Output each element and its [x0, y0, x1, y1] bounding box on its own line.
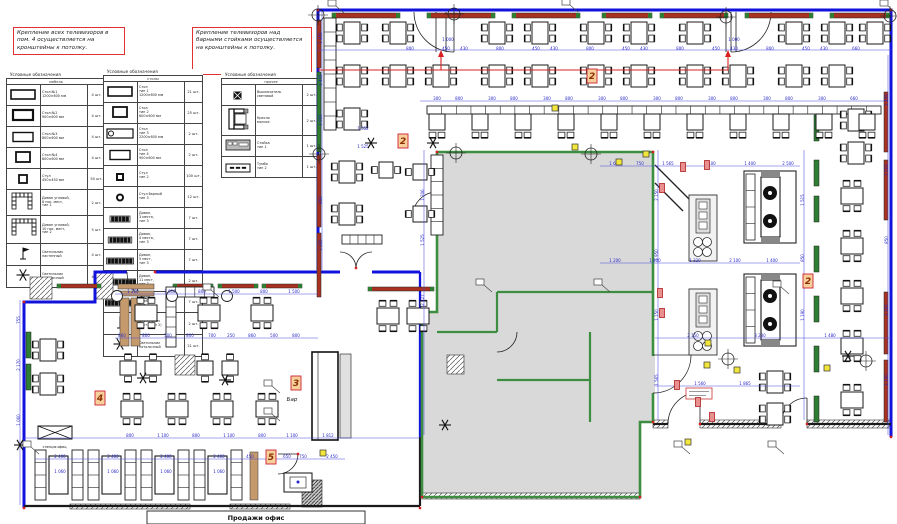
table-4seat — [841, 331, 863, 362]
waiter-station — [38, 426, 72, 439]
chair-icon — [610, 132, 617, 138]
chair-icon — [854, 181, 861, 187]
ceiling-light-icon — [427, 138, 439, 148]
chair-icon — [200, 323, 207, 329]
table-icon — [344, 22, 360, 44]
socket-icon — [734, 367, 740, 373]
svg-text:800: 800 — [192, 433, 200, 438]
chair-icon — [429, 169, 435, 176]
svg-text:300: 300 — [543, 96, 551, 101]
chair-icon — [550, 24, 556, 31]
table-4seat — [779, 22, 810, 44]
table-4seat — [166, 394, 188, 425]
table-4seat — [482, 65, 513, 87]
svg-text:4: 4 — [96, 394, 103, 404]
svg-text:450: 450 — [246, 454, 254, 459]
chair-icon — [782, 132, 789, 138]
svg-text:660: 660 — [850, 96, 858, 101]
svg-text:800: 800 — [292, 333, 300, 338]
svg-text:1 812: 1 812 — [322, 433, 334, 438]
chair-icon — [649, 35, 655, 42]
svg-text:1 206: 1 206 — [420, 189, 425, 201]
chair-icon — [213, 419, 220, 425]
table-4seat — [211, 394, 233, 425]
svg-text:800: 800 — [258, 433, 266, 438]
table-icon — [413, 206, 427, 222]
chair-icon — [825, 132, 832, 138]
chair-icon — [773, 132, 780, 138]
chair-icon — [372, 167, 378, 174]
chair-icon — [253, 323, 260, 329]
room-number-tag: 5 — [266, 450, 276, 464]
svg-text:450: 450 — [802, 46, 810, 51]
chair-icon — [854, 231, 861, 237]
svg-text:800: 800 — [785, 96, 793, 101]
chair-icon — [760, 373, 766, 380]
chair-icon — [148, 323, 155, 329]
chair-icon — [760, 384, 766, 391]
table-icon — [344, 65, 360, 87]
chair-icon — [123, 394, 130, 400]
chair-icon — [150, 354, 157, 360]
table-icon — [588, 22, 604, 44]
chair-icon — [804, 24, 810, 31]
svg-text:450: 450 — [622, 46, 630, 51]
chair-icon — [860, 35, 866, 42]
booth-table — [601, 114, 617, 138]
table-icon — [631, 22, 647, 44]
table-icon — [558, 114, 574, 130]
room-number-tag: 3 — [291, 376, 301, 390]
svg-text:800: 800 — [186, 333, 194, 338]
svg-text:1 525: 1 525 — [357, 144, 369, 149]
table-icon — [687, 65, 703, 87]
chair-icon — [843, 410, 850, 416]
chair-icon — [760, 416, 766, 423]
chair-icon — [148, 298, 155, 304]
svg-text:300: 300 — [488, 96, 496, 101]
table-icon — [841, 392, 863, 408]
table-4seat — [624, 65, 655, 87]
chair-icon — [507, 24, 513, 31]
table-4seat — [383, 65, 414, 87]
svg-text:850: 850 — [800, 254, 805, 262]
table-icon — [816, 114, 832, 130]
table-icon — [515, 114, 531, 130]
backbar-shelf — [340, 354, 351, 438]
chair-icon — [406, 169, 412, 176]
chair-icon — [383, 78, 389, 85]
chair-icon — [841, 111, 847, 118]
grid-marker-icon — [444, 4, 464, 24]
chair-icon — [134, 394, 141, 400]
svg-text:1 525: 1 525 — [420, 234, 425, 246]
chair-icon — [420, 326, 427, 332]
svg-text:500: 500 — [270, 333, 278, 338]
table-icon — [848, 142, 864, 164]
svg-text:430: 430 — [460, 46, 468, 51]
table-icon — [198, 305, 220, 321]
svg-text:800: 800 — [142, 333, 150, 338]
chair-icon — [567, 132, 574, 138]
svg-text:2 500: 2 500 — [782, 161, 794, 166]
callout-tag — [768, 441, 784, 454]
chair-icon — [854, 385, 861, 391]
chair-icon — [748, 67, 754, 74]
chair-icon — [779, 67, 785, 74]
table-4seat — [198, 298, 220, 329]
chair-icon — [779, 78, 785, 85]
chair-icon — [202, 354, 209, 360]
chair-icon — [847, 67, 853, 74]
chair-icon — [785, 384, 791, 391]
table-4seat — [624, 22, 655, 44]
chair-icon — [507, 78, 513, 85]
chair-icon — [525, 24, 531, 31]
table-4seat — [841, 142, 872, 164]
chair-icon — [779, 35, 785, 42]
table-4seat — [841, 385, 863, 416]
svg-text:800: 800 — [620, 96, 628, 101]
svg-text:1 150: 1 150 — [654, 309, 659, 321]
table-4seat — [680, 22, 711, 44]
table-icon — [841, 188, 863, 204]
chair-icon — [264, 298, 271, 304]
table-icon — [532, 22, 548, 44]
table-icon — [413, 164, 427, 180]
tv-icon — [705, 161, 710, 170]
chair-icon — [125, 376, 132, 382]
table-icon — [489, 22, 505, 44]
chair-icon — [843, 331, 850, 337]
svg-text:Бар: Бар — [287, 397, 298, 403]
table-icon — [829, 22, 845, 44]
booth-table — [687, 114, 703, 138]
svg-text:800: 800 — [586, 46, 594, 51]
svg-text:2 127: 2 127 — [420, 294, 425, 306]
chair-icon — [406, 211, 412, 218]
chair-icon — [269, 394, 276, 400]
table-4seat — [841, 231, 863, 262]
chair-icon — [200, 298, 207, 304]
table-2seat — [197, 354, 213, 382]
booth-table — [773, 114, 789, 138]
table-icon — [730, 65, 746, 87]
chair-icon — [58, 341, 64, 348]
socket-icon — [320, 450, 326, 456]
socket-icon — [705, 340, 711, 346]
chair-icon — [253, 298, 260, 304]
chair-icon — [337, 24, 343, 31]
chair-icon — [705, 24, 711, 31]
svg-text:300: 300 — [818, 96, 826, 101]
chair-icon — [379, 326, 386, 332]
chair-icon — [739, 132, 746, 138]
chair-icon — [429, 132, 436, 138]
svg-text:300: 300 — [708, 96, 716, 101]
svg-text:1 265: 1 265 — [318, 239, 323, 251]
table-4seat — [383, 22, 414, 44]
table-4seat — [337, 65, 368, 87]
svg-text:750: 750 — [299, 454, 307, 459]
chair-icon — [429, 211, 435, 218]
chair-icon — [866, 144, 872, 151]
chair-icon — [885, 35, 891, 42]
svg-text:430: 430 — [550, 46, 558, 51]
chair-icon — [524, 132, 531, 138]
chair-icon — [804, 35, 810, 42]
svg-text:2 100: 2 100 — [729, 258, 741, 263]
svg-text:1 060: 1 060 — [107, 469, 119, 474]
chair-icon — [785, 416, 791, 423]
svg-text:800: 800 — [766, 46, 774, 51]
chair-icon — [748, 78, 754, 85]
chair-icon — [332, 163, 338, 170]
svg-text:1 610: 1 610 — [164, 289, 176, 294]
chair-icon — [337, 121, 343, 128]
chair-icon — [525, 78, 531, 85]
svg-text:1 865: 1 865 — [739, 381, 751, 386]
svg-text:1 150: 1 150 — [884, 374, 889, 386]
chair-icon — [481, 132, 488, 138]
chair-icon — [408, 78, 414, 85]
bench-seat — [431, 155, 443, 235]
chair-icon — [760, 405, 766, 412]
chair-icon — [337, 35, 343, 42]
booth-table — [558, 114, 574, 138]
svg-text:3 230: 3 230 — [754, 333, 766, 338]
chair-icon — [785, 373, 791, 380]
chair-icon — [137, 323, 144, 329]
svg-text:1 480: 1 480 — [824, 333, 836, 338]
svg-text:800: 800 — [260, 289, 268, 294]
bench-seat — [342, 235, 382, 244]
svg-text:1 565: 1 565 — [654, 374, 659, 386]
chair-icon — [687, 132, 694, 138]
tv-icon — [681, 163, 686, 172]
svg-text:2 400: 2 400 — [213, 454, 225, 459]
svg-text:300: 300 — [763, 96, 771, 101]
chair-icon — [33, 352, 39, 359]
table-2seat — [406, 206, 435, 222]
chair-icon — [854, 206, 861, 212]
svg-text:1 100: 1 100 — [223, 433, 235, 438]
chair-icon — [438, 132, 445, 138]
socket-icon — [572, 144, 578, 150]
chair-icon — [885, 24, 891, 31]
chair-icon — [843, 306, 850, 312]
table-icon — [532, 65, 548, 87]
floor-plan-drawing: 8004504308004504308004504308004504308004… — [0, 0, 897, 524]
svg-text:1 260: 1 260 — [127, 289, 139, 294]
chair-icon — [211, 323, 218, 329]
chair-icon — [859, 132, 866, 138]
chair-icon — [390, 326, 397, 332]
chair-icon — [472, 132, 479, 138]
room-number-tag: 4 — [95, 391, 105, 405]
booth-table — [730, 114, 746, 138]
chair-icon — [362, 110, 368, 117]
table-icon — [339, 203, 355, 225]
chair-icon — [860, 24, 866, 31]
table-icon — [251, 305, 273, 321]
chair-icon — [841, 122, 847, 129]
chair-icon — [644, 132, 651, 138]
svg-text:2 400: 2 400 — [54, 454, 66, 459]
table-4seat — [760, 371, 791, 393]
table-4seat — [332, 203, 363, 225]
table-icon — [166, 401, 188, 417]
svg-text:1 060: 1 060 — [160, 469, 172, 474]
table-icon — [390, 65, 406, 87]
chair-icon — [482, 24, 488, 31]
chair-icon — [58, 352, 64, 359]
chair-icon — [525, 35, 531, 42]
chair-icon — [550, 78, 556, 85]
chair-icon — [866, 155, 872, 162]
chair-icon — [843, 206, 850, 212]
chair-icon — [383, 24, 389, 31]
svg-text:1 060: 1 060 — [213, 469, 225, 474]
svg-text:1 515: 1 515 — [800, 194, 805, 206]
chair-icon — [680, 35, 686, 42]
svg-text:430: 430 — [640, 46, 648, 51]
svg-text:1 565: 1 565 — [662, 161, 674, 166]
table-icon — [841, 338, 863, 354]
table-2seat — [406, 164, 435, 180]
chair-icon — [854, 281, 861, 287]
svg-text:1 400: 1 400 — [766, 258, 778, 263]
grid-marker-icon — [718, 349, 738, 369]
chair-icon — [58, 386, 64, 393]
svg-text:450: 450 — [442, 46, 450, 51]
tv-icon — [675, 381, 680, 390]
table-icon — [120, 361, 136, 375]
svg-text:800: 800 — [565, 96, 573, 101]
svg-text:1 100: 1 100 — [286, 433, 298, 438]
chair-icon — [168, 419, 175, 425]
svg-text:800: 800 — [675, 96, 683, 101]
svg-text:5: 5 — [268, 453, 274, 463]
booth-table — [429, 114, 445, 138]
chair-icon — [408, 35, 414, 42]
chair-icon — [482, 35, 488, 42]
tv-icon — [696, 398, 701, 407]
chair-icon — [332, 216, 338, 223]
svg-text:2 450: 2 450 — [326, 454, 338, 459]
round-stool-icon — [112, 291, 123, 302]
chair-icon — [847, 35, 853, 42]
svg-text:1 000: 1 000 — [442, 37, 454, 42]
chair-icon — [653, 132, 660, 138]
chair-icon — [624, 78, 630, 85]
svg-text:2 150: 2 150 — [654, 189, 659, 201]
chair-icon — [383, 35, 389, 42]
table-4seat — [841, 181, 863, 212]
title-block-label: Продажи офис — [228, 514, 285, 522]
chair-icon — [822, 24, 828, 31]
chair-icon — [696, 132, 703, 138]
svg-text:3: 3 — [293, 379, 299, 389]
svg-text:1 055: 1 055 — [318, 114, 323, 126]
chair-icon — [601, 132, 608, 138]
chair-icon — [624, 24, 630, 31]
chair-icon — [843, 385, 850, 391]
chair-icon — [843, 256, 850, 262]
svg-text:2 170: 2 170 — [16, 359, 21, 371]
svg-text:2: 2 — [805, 277, 811, 287]
svg-text:850: 850 — [318, 196, 323, 204]
room-number-tag: 2 — [803, 274, 813, 288]
svg-text:800: 800 — [126, 433, 134, 438]
chair-icon — [581, 24, 587, 31]
booth-table — [816, 114, 832, 138]
table-4seat — [135, 298, 157, 329]
table-icon — [407, 308, 429, 324]
tv-icon — [660, 309, 665, 318]
table-4seat — [407, 301, 429, 332]
svg-text:430: 430 — [730, 46, 738, 51]
table-icon — [631, 65, 647, 87]
svg-text:1 500: 1 500 — [288, 289, 300, 294]
chair-icon — [150, 376, 157, 382]
table-icon — [767, 403, 783, 425]
table-4seat — [581, 22, 612, 44]
chair-icon — [227, 376, 234, 382]
svg-text:800: 800 — [496, 46, 504, 51]
table-icon — [222, 361, 238, 375]
chair-icon — [804, 78, 810, 85]
chair-icon — [362, 24, 368, 31]
booth-table — [472, 114, 488, 138]
table-4seat — [525, 22, 556, 44]
table-icon — [601, 114, 617, 130]
chair-icon — [409, 326, 416, 332]
chair-icon — [680, 78, 686, 85]
svg-text:300: 300 — [433, 96, 441, 101]
svg-text:1 060: 1 060 — [16, 414, 21, 426]
chair-icon — [730, 132, 737, 138]
table-4seat — [121, 394, 143, 425]
chair-icon — [482, 78, 488, 85]
booth-table — [859, 114, 875, 138]
booth-table — [515, 114, 531, 138]
svg-text:2 150: 2 150 — [687, 333, 699, 338]
chair-icon — [816, 132, 823, 138]
svg-text:700: 700 — [208, 333, 216, 338]
chair-icon — [202, 376, 209, 382]
table-icon — [829, 65, 845, 87]
table-icon — [429, 114, 445, 130]
chair-icon — [804, 67, 810, 74]
boh-area — [422, 152, 653, 497]
socket-icon — [704, 362, 710, 368]
chair-icon — [606, 35, 612, 42]
svg-text:300: 300 — [598, 96, 606, 101]
svg-text:1 320: 1 320 — [689, 258, 701, 263]
chair-icon — [847, 24, 853, 31]
chair-icon — [705, 78, 711, 85]
chair-icon — [168, 394, 175, 400]
svg-text:850: 850 — [884, 236, 889, 244]
chair-icon — [408, 24, 414, 31]
svg-text:2 400: 2 400 — [160, 454, 172, 459]
table-4seat — [525, 65, 556, 87]
chair-icon — [779, 24, 785, 31]
table-4seat — [482, 22, 513, 44]
socket-icon — [552, 105, 558, 111]
tv-icon — [658, 289, 663, 298]
